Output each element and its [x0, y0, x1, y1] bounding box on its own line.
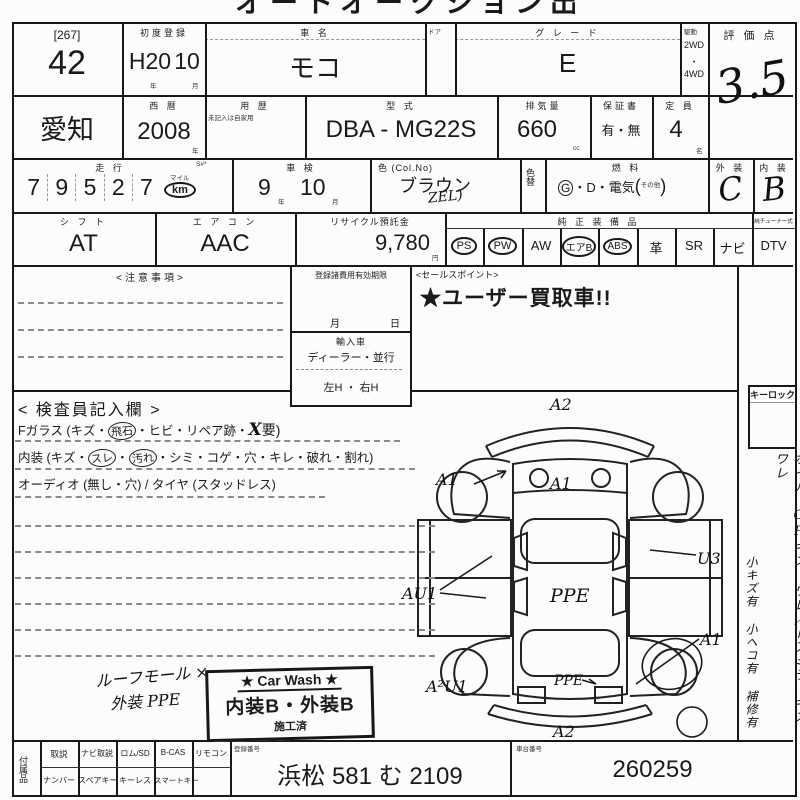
model-value: DBA - MG22S — [305, 116, 497, 144]
divider — [296, 369, 402, 370]
chassis-number: 260259 — [510, 756, 795, 784]
divider — [708, 22, 710, 158]
capacity-suffix: 名 — [696, 145, 703, 155]
drive-dot: ・ — [680, 55, 708, 68]
fuel-value: G・D・電気(その他) — [558, 176, 666, 197]
ruling — [15, 603, 435, 605]
mark-rear-left: A²U1 — [424, 677, 468, 696]
fuel-rest: ・D・電気 — [573, 180, 634, 195]
ruling — [15, 496, 325, 498]
ruling — [15, 629, 435, 631]
mileage-s-label: S#* — [196, 161, 206, 168]
model-label: 型 式 — [305, 99, 497, 112]
accessories-label: 付属品 — [17, 748, 30, 790]
warranty-value: 有・無 — [590, 120, 652, 139]
front-bumper — [486, 428, 654, 446]
notes-label: <注意事項> — [12, 269, 290, 284]
inspector-title: < 検査員記入欄 > — [18, 396, 162, 420]
calendar-suffix: 年 — [192, 145, 199, 155]
left-rear-window — [514, 578, 527, 615]
reg-no-label: 登録番号 — [234, 743, 260, 753]
divider — [295, 212, 297, 265]
capacity-label: 定 員 — [652, 99, 708, 112]
fuel-gas-circled: G — [557, 179, 573, 196]
divider — [205, 22, 207, 158]
equip-cell: PW — [483, 236, 522, 255]
drive-4wd: 4WD — [680, 69, 708, 79]
lot-number: 42 — [12, 44, 122, 83]
shaken-month-suffix: 月 — [332, 196, 339, 206]
fglass-line: Fガラス (キズ・飛石・ヒビ・リペア跡・X要) — [18, 420, 280, 440]
page-title: オートオークション出品票 — [235, 0, 575, 14]
divider — [483, 229, 485, 265]
interior-p2: ・シミ・コゲ・穴・キレ・破れ・割れ) — [157, 451, 374, 465]
audio-tire-line: オーディオ (無し・穴) / タイヤ (スタッドレス) — [18, 474, 276, 493]
ruling — [15, 551, 435, 553]
carwash-grades: 内装B・外装B — [209, 689, 372, 720]
acc-keyless: キーレス — [116, 775, 154, 786]
import-label: 輸入車 — [292, 335, 410, 348]
drive-2wd: 2WD — [680, 40, 708, 50]
month-label: 月 — [330, 315, 340, 330]
first-reg-year-suffix: 年 — [150, 80, 157, 90]
divider — [155, 212, 157, 265]
fuel-paren-close: ) — [660, 176, 666, 196]
divider — [12, 212, 793, 214]
shift-label: シ フ ト — [12, 215, 155, 228]
shaken-month: 10 — [300, 174, 326, 201]
equip-cell: PS — [445, 236, 483, 255]
car-damage-diagram: A2 A1 A1 AU1 PPE U3 A1 A²U1 PPE A2 — [400, 392, 745, 744]
reg-fee-box: 登録諸費用有効期限 月 日 輸入車 ディーラー・並行 左H ・ 右H — [290, 265, 412, 407]
mark-right-rear-door: U3 — [697, 549, 721, 568]
divider — [752, 212, 754, 265]
rear-ppe-arrow — [582, 679, 596, 684]
first-reg-era: H20 — [124, 48, 176, 75]
interior-dirt-circled: 汚れ — [128, 448, 157, 468]
divider — [680, 22, 682, 95]
mileage-digit: 2 — [105, 174, 133, 201]
aircon-value: AAC — [155, 230, 295, 258]
fglass-x-mark: X — [249, 420, 262, 440]
interior-dot: ・ — [116, 451, 129, 465]
divider — [590, 95, 592, 158]
right-rear-window — [613, 578, 626, 615]
car-name: モコ — [205, 48, 425, 85]
divider — [455, 22, 457, 95]
registration-number: 浜松 581 む 2109 — [230, 756, 510, 791]
lot-bracket: [267] — [12, 28, 122, 42]
sales-point-label: <セールスポイント> — [416, 268, 499, 281]
mark-rear-glass: PPE — [553, 673, 583, 689]
equip-sr: SR — [675, 238, 713, 253]
chassis-label: 車台番号 — [516, 743, 542, 753]
divider — [425, 22, 427, 95]
recycle-value: 9,780 — [295, 230, 430, 256]
door-label: ドア — [428, 26, 441, 36]
divider — [737, 265, 739, 740]
day-label: 日 — [390, 315, 400, 330]
acc-manual: 取説 — [40, 748, 78, 760]
fglass-stone-circled: 飛石 — [107, 421, 136, 441]
mileage-digit: 9 — [48, 174, 76, 201]
mark-right-rear: A1 — [698, 630, 722, 649]
calendar-label: 西 暦 — [124, 99, 204, 112]
ruling — [15, 468, 415, 470]
prefecture: 愛知 — [12, 108, 122, 147]
car-name-label: 車 名 — [205, 26, 425, 40]
divider — [675, 229, 677, 265]
equip-dtv: DTV — [752, 238, 795, 253]
wheel-damage-circle — [637, 632, 708, 696]
divider — [545, 158, 547, 212]
mileage-digit: 7 — [133, 174, 160, 201]
fuel-paren-open: ( — [635, 176, 641, 196]
acc-navi-manual: ナビ取説 — [78, 748, 116, 759]
interior-p1: 内装 (キズ・ — [18, 451, 88, 465]
right-headlight — [592, 469, 610, 487]
recycle-label: リサイクル預託金 — [295, 215, 445, 228]
shift-value: AT — [12, 230, 155, 258]
calendar-year: 2008 — [124, 118, 204, 146]
score-label: 評 価 点 — [708, 27, 793, 43]
capacity-value: 4 — [652, 116, 700, 144]
car-body — [513, 459, 627, 699]
ruling — [15, 440, 400, 442]
carwash-title: ★ Car Wash ★ — [237, 670, 342, 693]
front-bumper-ends — [486, 446, 654, 457]
equip-aw: AW — [522, 238, 560, 253]
right-note-small-scratch: 小キズ有 小ヘコ有 補修有 — [743, 556, 760, 738]
shaken-year-suffix: 年 — [278, 196, 285, 206]
ruling — [15, 655, 435, 657]
sales-point-text: ★ユーザー買取車!! — [420, 282, 612, 312]
keylock-box: キーロック — [748, 385, 797, 449]
displacement-suffix: cc — [573, 145, 580, 152]
equip-abs: ABS — [603, 238, 631, 255]
equip-navi: ナビ — [713, 238, 752, 257]
fglass-p1: Fガラス (キズ・ — [18, 424, 108, 438]
fglass-p2: ・ヒビ・リペア跡・ — [136, 424, 249, 438]
mark-rear: A2 — [551, 722, 575, 741]
dtv-header: 純チューナー式 — [752, 217, 795, 225]
acc-bcas: B-CAS — [154, 748, 192, 757]
notes-line — [18, 302, 283, 304]
acc-number-plate: ナンバー — [40, 775, 78, 786]
mark-hood: A1 — [548, 474, 572, 493]
right-front-fender — [630, 459, 689, 518]
divider — [12, 158, 793, 160]
equip-cell: エアB — [560, 236, 598, 257]
u3-arrow — [650, 550, 696, 555]
interior-check-line: 内装 (キズ・スレ・汚れ・シミ・コゲ・穴・キレ・破れ・割れ) — [18, 447, 373, 467]
front-bumper-inner — [492, 441, 648, 458]
equip-ps: PS — [451, 237, 478, 255]
divider — [520, 158, 522, 212]
equip-pw: PW — [488, 237, 518, 255]
right-note-wheel-mirror: ホイル・CPキズ ワレ／ドアミラーキズ ワレ — [770, 452, 800, 737]
divider — [510, 740, 512, 795]
notes-line — [18, 356, 283, 358]
divider — [230, 740, 232, 795]
mileage-digit: 5 — [76, 174, 104, 201]
empty-check-circle — [677, 707, 707, 737]
clipped-title-strip: オートオークション出品票 — [235, 0, 575, 14]
drive-label: 駆動 — [684, 26, 697, 36]
divider — [497, 95, 499, 158]
divider — [652, 95, 654, 158]
mark-left-front: A1 — [434, 470, 458, 489]
divider — [560, 229, 562, 265]
first-reg-month-suffix: 月 — [192, 80, 199, 90]
displacement-label: 排気量 — [497, 99, 590, 112]
first-reg-label: 初度登録 — [124, 26, 204, 39]
windshield — [521, 519, 619, 563]
exterior-grade: C — [706, 167, 756, 211]
right-door-split — [629, 520, 722, 636]
ruling — [15, 577, 435, 579]
fuel-label: 燃 料 — [545, 161, 708, 174]
rear-window — [521, 630, 619, 676]
divider — [305, 95, 307, 158]
equipment-label: 純 正 装 備 品 — [445, 215, 752, 228]
mark-front: A2 — [548, 395, 572, 414]
interior-scuff-circled: スレ — [88, 448, 117, 468]
color-change-label: 色替 — [524, 168, 537, 186]
divider — [292, 331, 410, 333]
divider — [637, 229, 639, 265]
usage-note: 未記入は自家用 — [208, 112, 254, 122]
mark-roof: PPE — [549, 585, 590, 607]
fglass-p3: 要) — [262, 422, 281, 438]
divider — [713, 229, 715, 265]
km-badge: km — [164, 182, 196, 198]
dealer-parallel: ディーラー・並行 — [292, 349, 410, 365]
divider — [12, 95, 793, 97]
mark-left-side: AU1 — [400, 584, 437, 603]
interior-grade: B — [751, 168, 797, 210]
keylock-label: キーロック — [750, 387, 795, 403]
divider — [122, 22, 124, 158]
grade-label: グ レ ー ド — [455, 26, 680, 40]
divider — [40, 767, 230, 768]
mile-label: マイル — [170, 172, 190, 182]
divider — [370, 158, 372, 212]
hand-note-exterior-ppe: 外装 PPE — [109, 686, 181, 715]
acc-smart-key: スマートキー — [154, 775, 192, 786]
left-front-fender — [451, 459, 510, 518]
usage-label: 用 歴 — [205, 99, 305, 112]
reg-fee-label: 登録諸費用有効期限 — [292, 270, 410, 281]
ruling — [15, 525, 435, 527]
carwash-stamp: ★ Car Wash ★ 内装B・外装B 施工済 — [205, 666, 375, 742]
shaken-label: 車 検 — [232, 161, 370, 174]
left-headlight — [530, 469, 548, 487]
divider — [232, 158, 234, 212]
equip-leather: 革 — [637, 238, 675, 257]
acc-rom-sd: ロム/SD — [116, 748, 154, 759]
warranty-label: 保証書 — [590, 99, 652, 112]
mileage-digit: 7 — [20, 174, 48, 201]
displacement-value: 660 — [497, 116, 577, 144]
divider — [445, 212, 447, 265]
mileage-digits: 7 9 5 2 7 — [20, 174, 160, 201]
auction-sheet: オートオークション出品票 [267] 42 初度登録 H20 10 — [0, 0, 800, 800]
acc-remote: リモコン — [192, 748, 230, 759]
notes-line — [18, 329, 283, 331]
grade-value: E — [455, 48, 680, 79]
fuel-other: その他 — [641, 182, 661, 189]
equip-airbag: エアB — [562, 236, 597, 257]
divider — [445, 228, 795, 229]
shaken-year: 9 — [258, 174, 271, 201]
acc-spare-key: スペアキー — [78, 775, 116, 786]
divider — [522, 229, 524, 265]
handle-position: 左H ・ 右H — [292, 379, 410, 395]
recycle-suffix: 円 — [432, 252, 439, 262]
divider — [12, 740, 793, 742]
equip-cell: ABS — [598, 236, 637, 255]
rear-bumper-inner — [494, 705, 646, 717]
mileage-label: 走 行 — [40, 161, 180, 174]
divider — [598, 229, 600, 265]
first-reg-month: 10 — [172, 48, 202, 75]
aircon-label: エ ア コ ン — [155, 215, 295, 228]
